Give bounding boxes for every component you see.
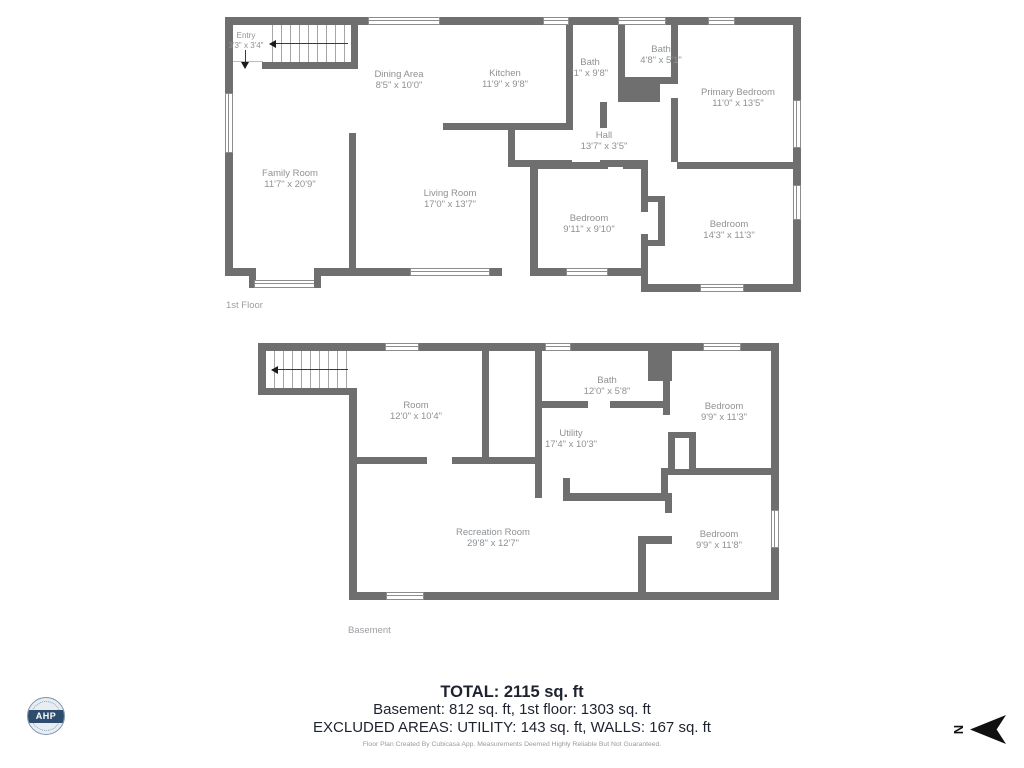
room-dims: 9'9" x 11'3" bbox=[701, 412, 747, 423]
floor-label: Basement bbox=[348, 625, 391, 636]
bay-window bbox=[254, 280, 316, 288]
wall bbox=[793, 17, 801, 292]
room-label: Primary Bedroom 11'0" x 13'5" bbox=[701, 87, 775, 109]
ahp-logo: AHP bbox=[27, 697, 65, 735]
room-label: Room 12'0" x 10'4" bbox=[390, 400, 442, 422]
window bbox=[368, 17, 440, 25]
summary-total: TOTAL: 2115 sq. ft bbox=[0, 683, 1024, 702]
room-dims: 9'11" x 9'10" bbox=[563, 224, 614, 235]
room-label: Dining Area 8'5" x 10'0" bbox=[374, 69, 423, 91]
room-dims: 11'0" x 13'5" bbox=[701, 98, 775, 109]
floor-plan-page: Entry 3'3" x 3'4" Dining Area 8'5" x 10'… bbox=[0, 0, 1024, 768]
room-name: Dining Area bbox=[374, 69, 423, 80]
window bbox=[700, 284, 744, 292]
room-dims: 17'0" x 13'7" bbox=[424, 199, 477, 210]
window bbox=[793, 185, 801, 220]
room-dims: 13'7" x 3'5" bbox=[581, 141, 628, 152]
window bbox=[410, 268, 490, 276]
room-name: Entry bbox=[229, 31, 264, 41]
chimney-block bbox=[618, 77, 660, 102]
wall bbox=[262, 62, 358, 69]
room-name: Utility bbox=[545, 428, 597, 439]
north-arrow-icon: N bbox=[952, 712, 1007, 748]
wall bbox=[542, 401, 588, 408]
room-dims: 29'8" x 12'7" bbox=[456, 538, 530, 549]
room-dims: '1" x 9'8" bbox=[572, 68, 608, 79]
room-dims: 11'7" x 20'9" bbox=[262, 179, 318, 190]
window bbox=[385, 343, 419, 351]
room-label: Living Room 17'0" x 13'7" bbox=[424, 188, 477, 210]
window bbox=[771, 510, 779, 548]
wall bbox=[677, 162, 801, 169]
wall bbox=[658, 196, 665, 242]
room-label: Bedroom 9'11" x 9'10" bbox=[563, 213, 614, 235]
stair-direction-arrow bbox=[270, 43, 348, 44]
wall bbox=[610, 401, 663, 408]
wall bbox=[355, 457, 427, 464]
wall bbox=[663, 381, 670, 415]
room-label: Entry 3'3" x 3'4" bbox=[229, 31, 264, 51]
wall bbox=[530, 162, 538, 276]
stair-direction-arrow bbox=[272, 369, 348, 370]
room-name: Bath bbox=[640, 44, 682, 55]
room-name: Living Room bbox=[424, 188, 477, 199]
room-dims: 12'0" x 5'8" bbox=[584, 386, 631, 397]
room-label: Family Room 11'7" x 20'9" bbox=[262, 168, 318, 190]
room-dims: 17'4" x 10'3" bbox=[545, 439, 597, 450]
chimney-block bbox=[648, 343, 672, 381]
wall bbox=[638, 536, 672, 544]
wall bbox=[452, 457, 538, 464]
summary-excluded-areas: EXCLUDED AREAS: UTILITY: 143 sq. ft, WAL… bbox=[0, 719, 1024, 736]
room-name: Bedroom bbox=[701, 401, 747, 412]
room-name: Primary Bedroom bbox=[701, 87, 775, 98]
room-dims: 3'3" x 3'4" bbox=[229, 41, 264, 51]
room-name: Bedroom bbox=[703, 219, 754, 230]
entry-down-arrow bbox=[245, 50, 246, 68]
window bbox=[545, 343, 571, 351]
wall bbox=[482, 351, 489, 463]
wall bbox=[349, 388, 357, 600]
room-label: Bath 4'8" x 5'1" bbox=[640, 44, 682, 66]
wall bbox=[656, 77, 678, 84]
north-arrowhead bbox=[970, 715, 1006, 744]
room-name: Bedroom bbox=[563, 213, 614, 224]
logo-text: AHP bbox=[28, 710, 64, 723]
wall bbox=[530, 162, 608, 169]
wall bbox=[618, 25, 625, 80]
wall bbox=[641, 240, 665, 246]
room-name: Room bbox=[390, 400, 442, 411]
room-label: Kitchen 11'9" x 9'8" bbox=[482, 68, 528, 90]
wall bbox=[258, 388, 356, 395]
summary-floor-areas: Basement: 812 sq. ft, 1st floor: 1303 sq… bbox=[0, 701, 1024, 718]
wall bbox=[668, 469, 696, 475]
wall bbox=[638, 536, 646, 600]
room-label: Bedroom 9'9" x 11'3" bbox=[701, 401, 747, 423]
room-label: Hall 13'7" x 3'5" bbox=[581, 130, 628, 152]
window bbox=[618, 17, 666, 25]
wall bbox=[535, 351, 542, 498]
room-name: Recreation Room bbox=[456, 527, 530, 538]
room-dims: 11'9" x 9'8" bbox=[482, 79, 528, 90]
room-name: Hall bbox=[581, 130, 628, 141]
room-dims: 12'0" x 10'4" bbox=[390, 411, 442, 422]
room-label: Bedroom 14'3" x 11'3" bbox=[703, 219, 754, 241]
disclaimer: Floor Plan Created By Cubicasa App. Meas… bbox=[0, 741, 1024, 748]
room-name: Bath bbox=[572, 57, 608, 68]
wall bbox=[258, 343, 779, 351]
wall bbox=[693, 468, 779, 475]
wall bbox=[665, 493, 672, 513]
north-letter: N bbox=[951, 725, 966, 734]
wall bbox=[671, 98, 678, 162]
wall bbox=[668, 432, 696, 438]
room-dims: 8'5" x 10'0" bbox=[374, 80, 423, 91]
window bbox=[543, 17, 569, 25]
room-name: Bath bbox=[584, 375, 631, 386]
window bbox=[225, 93, 233, 153]
wall bbox=[563, 493, 668, 501]
wall bbox=[349, 133, 356, 276]
room-name: Family Room bbox=[262, 168, 318, 179]
room-name: Bedroom bbox=[696, 529, 742, 540]
room-label: Bath '1" x 9'8" bbox=[572, 57, 608, 79]
room-dims: 9'9" x 11'8" bbox=[696, 540, 742, 551]
window bbox=[703, 343, 741, 351]
room-name: Kitchen bbox=[482, 68, 528, 79]
room-label: Bath 12'0" x 5'8" bbox=[584, 375, 631, 397]
window bbox=[793, 100, 801, 148]
window bbox=[566, 268, 608, 276]
room-label: Bedroom 9'9" x 11'8" bbox=[696, 529, 742, 551]
room-dims: 4'8" x 5'1" bbox=[640, 55, 682, 66]
floor-label: 1st Floor bbox=[226, 300, 263, 311]
room-label: Recreation Room 29'8" x 12'7" bbox=[456, 527, 530, 549]
wall bbox=[600, 102, 607, 128]
wall bbox=[641, 196, 665, 202]
wall bbox=[641, 162, 648, 212]
window bbox=[708, 17, 735, 25]
window bbox=[386, 592, 424, 600]
room-dims: 14'3" x 11'3" bbox=[703, 230, 754, 241]
room-label: Utility 17'4" x 10'3" bbox=[545, 428, 597, 450]
